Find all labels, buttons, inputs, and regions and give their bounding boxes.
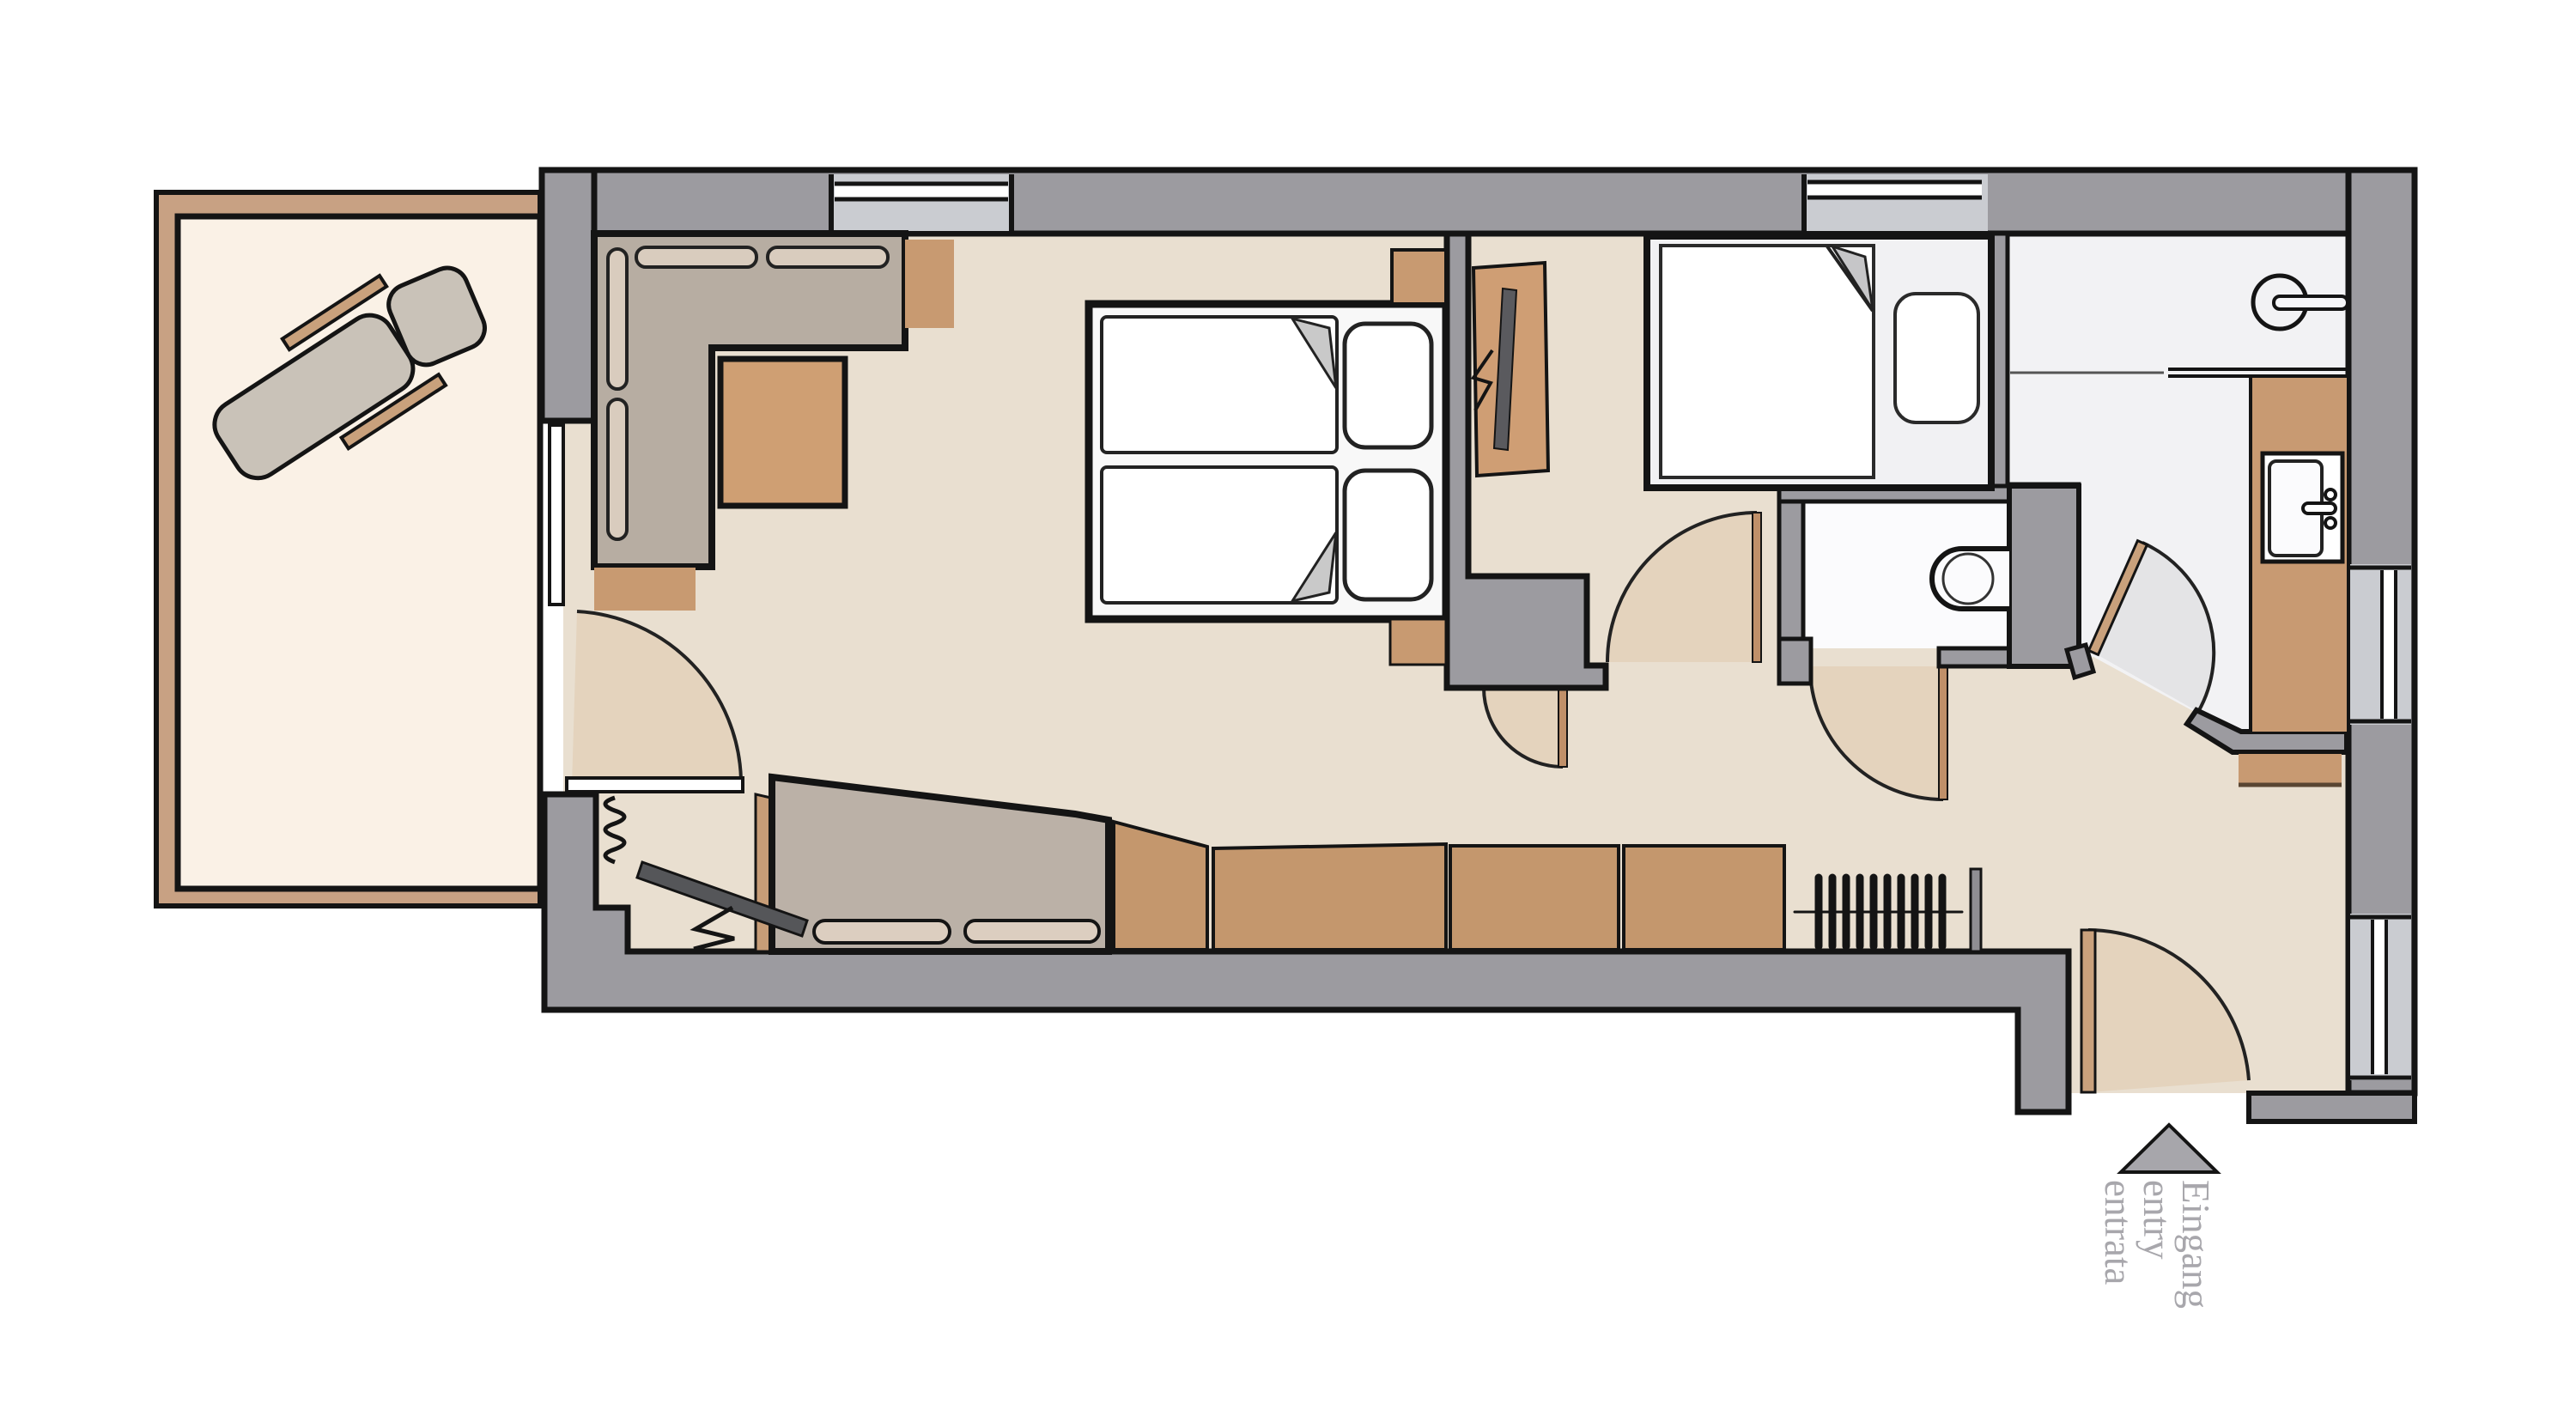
svg-text:entry: entry bbox=[2136, 1180, 2178, 1260]
svg-text:Eingang: Eingang bbox=[2174, 1180, 2217, 1309]
svg-text:entrata: entrata bbox=[2097, 1180, 2140, 1285]
